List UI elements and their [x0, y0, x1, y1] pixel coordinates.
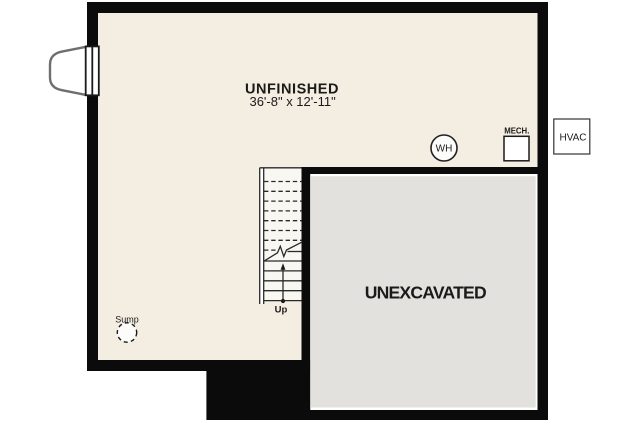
- svg-text:MECH.: MECH.: [504, 127, 529, 136]
- svg-text:36'-8" x 12'-11": 36'-8" x 12'-11": [249, 94, 336, 109]
- svg-text:UNEXCAVATED: UNEXCAVATED: [365, 283, 486, 303]
- svg-text:Up: Up: [275, 305, 288, 316]
- svg-text:HVAC: HVAC: [559, 132, 586, 143]
- svg-text:WH: WH: [436, 144, 453, 155]
